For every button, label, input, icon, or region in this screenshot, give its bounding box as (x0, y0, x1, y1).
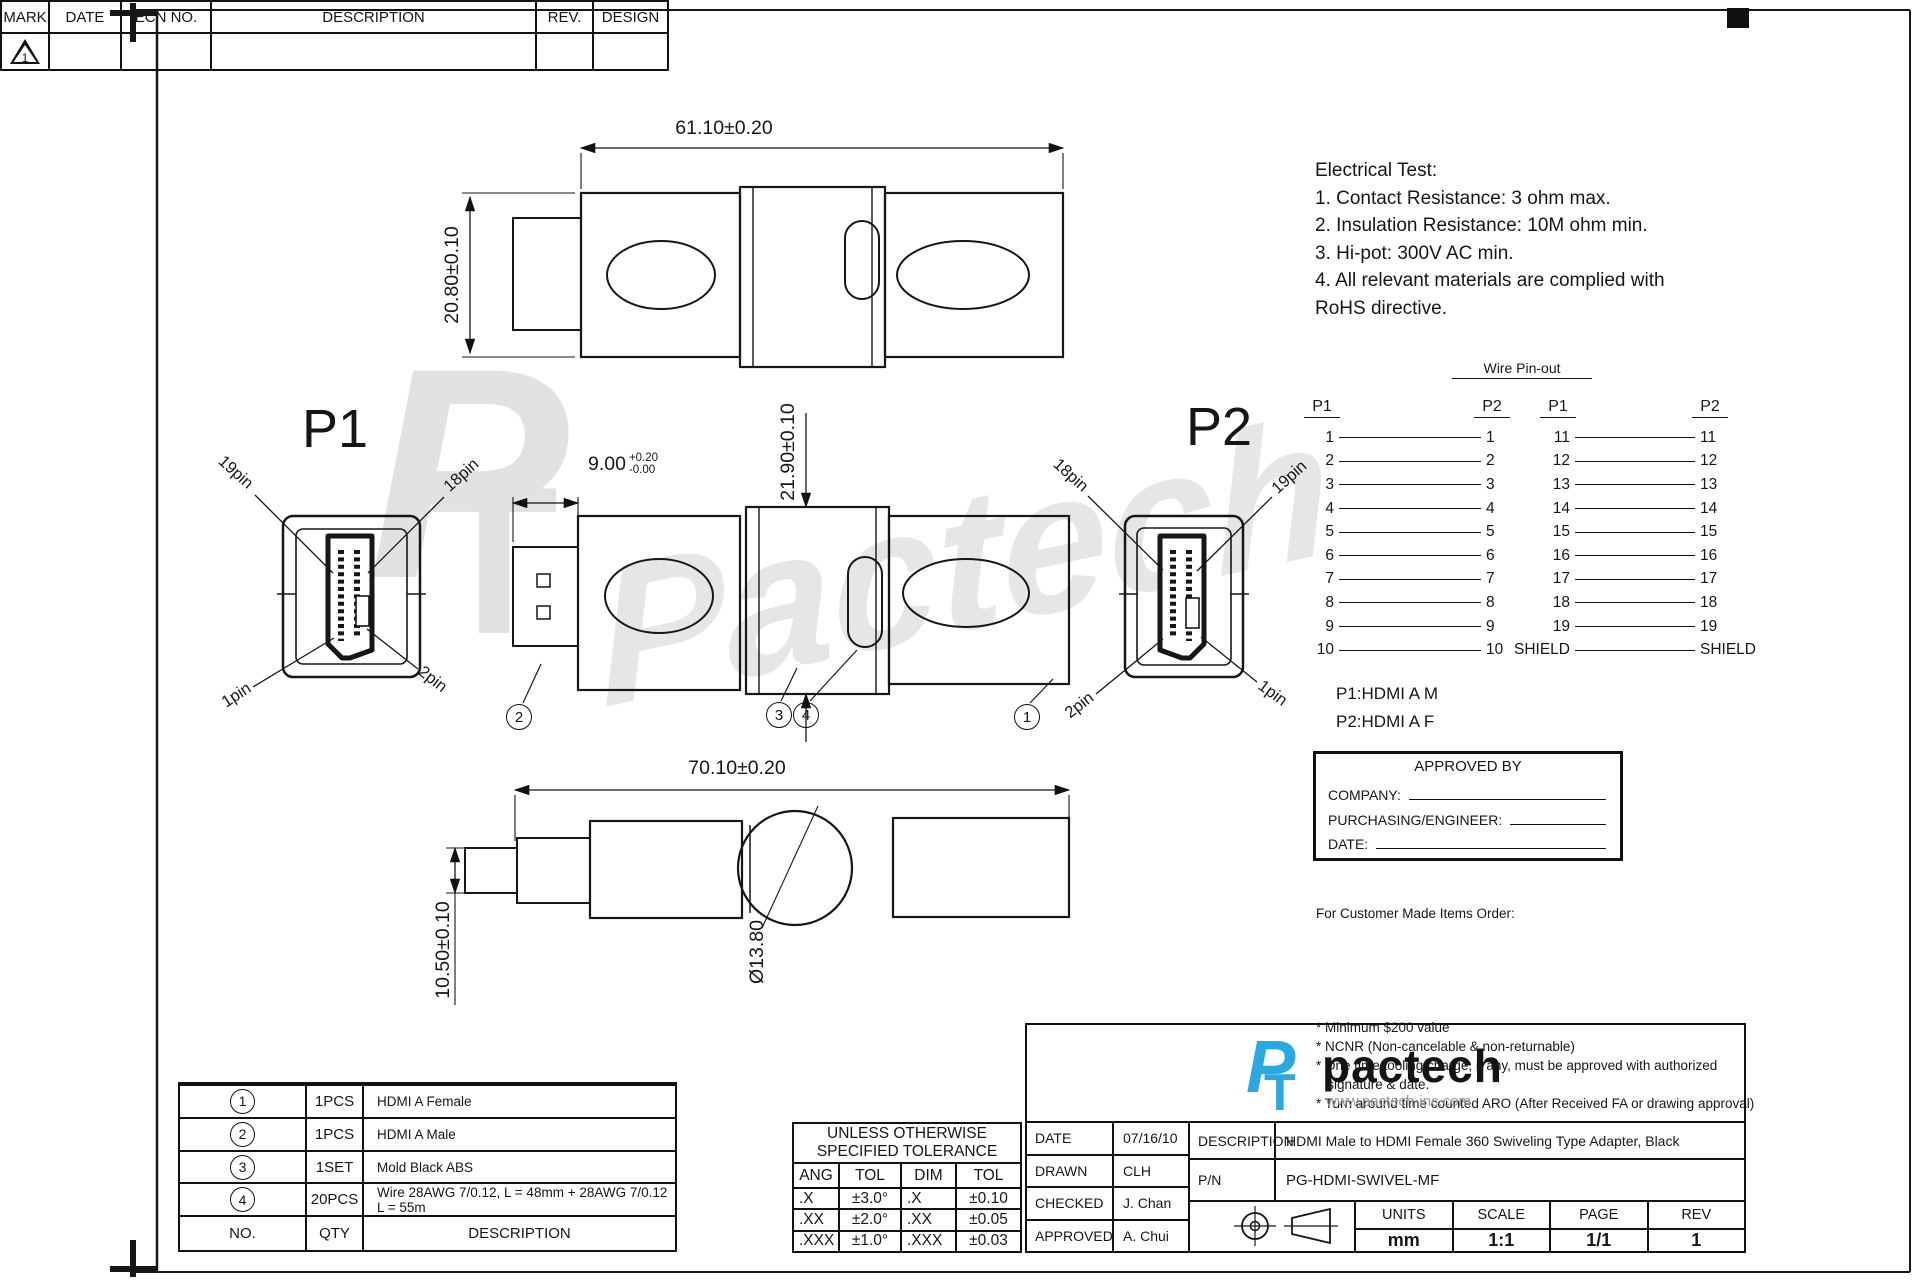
pinout-group-a: 1 1 2 2 3 3 4 4 5 5 6 6 (1290, 426, 1530, 662)
approved-by-box: APPROVED BY COMPANY: PURCHASING/ENGINEER… (1313, 751, 1623, 861)
pinout-wire-line (1575, 484, 1695, 485)
pinout-right-pin: 12 (1700, 452, 1762, 470)
pinout-wire-line (1575, 650, 1695, 651)
tolerance-header-angtol: TOL (840, 1164, 902, 1187)
tolerance-dim-cell: .XX (902, 1210, 957, 1229)
pinout-wire-line (1339, 579, 1481, 580)
pinout-right-pin: 14 (1700, 500, 1762, 518)
pinout-left-pin: 7 (1290, 570, 1334, 588)
bom-qty-cell: 1PCS (307, 1119, 364, 1150)
bom-item-number: 1 (230, 1089, 255, 1114)
revision-empty-design (594, 34, 667, 69)
p2-pin1-label: 1pin (1240, 667, 1304, 721)
dim-plug-length: 9.00 +0.20 -0.00 (588, 452, 658, 476)
drawn-value: CLH (1114, 1156, 1188, 1187)
electrical-test-line: 2. Insulation Resistance: 10M ohm min. (1315, 212, 1685, 240)
pinout-header-p2-b: P2 (1692, 398, 1728, 418)
description-value: HDMI Male to HDMI Female 360 Swiveling T… (1276, 1123, 1744, 1158)
bom-footer-no: NO. (180, 1217, 307, 1250)
bom-no-cell: 3 (180, 1152, 307, 1183)
pinout-row: 6 6 (1290, 544, 1530, 568)
revision-col-description: DESCRIPTION (212, 2, 537, 34)
revision-col-date: DATE (50, 2, 122, 34)
page-value: 1/1 (1551, 1230, 1647, 1251)
pinout-right-pin: 19 (1700, 618, 1762, 636)
pinout-row: 3 3 (1290, 473, 1530, 497)
pinout-left-pin: 19 (1508, 618, 1570, 636)
pinout-header-p1-b: P1 (1540, 398, 1576, 418)
pinout-left-pin: 17 (1508, 570, 1570, 588)
bom-table: 4 20PCS Wire 28AWG 7/0.12, L = 48mm + 28… (178, 1082, 677, 1252)
pn-field-label: P/N (1190, 1160, 1276, 1200)
tolerance-title-line2: SPECIFIED TOLERANCE (817, 1143, 997, 1161)
pinout-wire-line (1575, 626, 1695, 627)
p1-view-label: P1 (302, 398, 368, 460)
tolerance-row: .X ±3.0° .X ±0.10 (794, 1189, 1020, 1210)
pinout-row: 1 1 (1290, 426, 1530, 450)
rev-label: REV (1649, 1202, 1745, 1230)
pinout-row: 19 19 (1508, 615, 1762, 639)
pinout-row: 13 13 (1508, 473, 1762, 497)
projection-symbol-cell (1190, 1202, 1356, 1251)
bom-row: 1 1PCS HDMI A Female (180, 1084, 675, 1117)
tolerance-angtol-cell: ±1.0° (840, 1232, 902, 1251)
revision-table: MARK DATE ECN NO. DESCRIPTION REV. DESIG… (0, 0, 669, 71)
tolerance-dimtol-cell: ±0.05 (957, 1210, 1020, 1229)
pinout-right-pin: 16 (1700, 547, 1762, 565)
dim-top-length: 61.10±0.20 (662, 116, 786, 140)
pinout-right-pin: 18 (1700, 594, 1762, 612)
pinout-row: 11 11 (1508, 426, 1762, 450)
balloon-2: 2 (506, 704, 532, 730)
pinout-wire-line (1339, 650, 1481, 651)
pinout-left-pin: 14 (1508, 500, 1570, 518)
bom-rows: 4 20PCS Wire 28AWG 7/0.12, L = 48mm + 28… (180, 1084, 675, 1215)
checked-field-label: CHECKED (1027, 1188, 1114, 1219)
bom-item-number: 2 (230, 1122, 255, 1147)
pinout-row: 7 7 (1290, 568, 1530, 592)
dim-plug-main: 9.00 (588, 453, 626, 476)
bom-desc-cell: Wire 28AWG 7/0.12, L = 48mm + 28AWG 7/0.… (364, 1184, 675, 1215)
pinout-right-pin: SHIELD (1700, 641, 1762, 659)
company-blank-line (1409, 799, 1606, 800)
revision-col-rev: REV. (537, 2, 594, 34)
description-field-label: DESCRIPTION (1190, 1123, 1276, 1158)
pinout-left-pin: 2 (1290, 452, 1334, 470)
tolerance-dim-cell: .XXX (902, 1232, 957, 1251)
bom-no-cell: 1 (180, 1086, 307, 1117)
approved-value: A. Chui (1114, 1221, 1188, 1252)
dim-knob-diameter: Ø13.80 (746, 897, 768, 1007)
pinout-wire-line (1575, 437, 1695, 438)
revision-empty-date (50, 34, 122, 69)
pinout-wire-line (1575, 579, 1695, 580)
pinout-row: 2 2 (1290, 450, 1530, 474)
pinout-row: 9 9 (1290, 615, 1530, 639)
electrical-test-lines: 1. Contact Resistance: 3 ohm max.2. Insu… (1315, 185, 1685, 323)
bom-qty-cell: 20PCS (307, 1184, 364, 1215)
pinout-row: SHIELD SHIELD (1508, 638, 1762, 662)
electrical-test-line: RoHS directive. (1315, 295, 1685, 323)
pinout-left-pin: 4 (1290, 500, 1334, 518)
date-blank-line (1376, 848, 1606, 849)
checked-value: J. Chan (1114, 1188, 1188, 1219)
p1-pin1-label: 1pin (205, 670, 270, 722)
tolerance-row: .XX ±2.0° .XX ±0.05 (794, 1210, 1020, 1231)
date-label: DATE: (1328, 836, 1368, 852)
pinout-wire-line (1339, 508, 1481, 509)
pinout-right-pin: 11 (1700, 429, 1762, 447)
units-value: mm (1356, 1230, 1452, 1251)
bom-qty-cell: 1SET (307, 1152, 364, 1183)
bom-row: 2 1PCS HDMI A Male (180, 1117, 675, 1150)
logo-wordmark: pactech (1322, 1039, 1503, 1093)
bom-desc-cell: HDMI A Female (364, 1086, 675, 1117)
bom-footer-row: NO. QTY DESCRIPTION (180, 1215, 675, 1250)
revision-col-mark: MARK (2, 2, 50, 34)
dim-plug-tol-lower: -0.00 (629, 464, 658, 476)
pinout-left-pin: 9 (1290, 618, 1334, 636)
revision-mark-number: 1 (10, 51, 40, 65)
pinout-row: 4 4 (1290, 497, 1530, 521)
revision-empty-rev (537, 34, 594, 69)
bom-no-cell: 2 (180, 1119, 307, 1150)
pinout-header-p1-a: P1 (1304, 398, 1340, 418)
electrical-test-line: 3. Hi-pot: 300V AC min. (1315, 240, 1685, 268)
tolerance-dimtol-cell: ±0.03 (957, 1232, 1020, 1251)
tolerance-rows: .X ±3.0° .X ±0.10 .XX ±2.0° .XX ±0.05 .X… (794, 1189, 1020, 1251)
pinout-left-pin: 16 (1508, 547, 1570, 565)
balloon-4: 4 (793, 702, 819, 728)
p2-view-label: P2 (1186, 396, 1252, 458)
pinout-left-pin: 3 (1290, 476, 1334, 494)
pinout-row: 15 15 (1508, 520, 1762, 544)
pinout-wire-line (1339, 555, 1481, 556)
pinout-right-pin: 17 (1700, 570, 1762, 588)
purchasing-blank-line (1510, 824, 1606, 825)
pinout-wire-line (1575, 602, 1695, 603)
revision-empty-description (212, 34, 537, 69)
bom-footer-qty: QTY (307, 1217, 364, 1250)
pinout-row: 10 10 (1290, 638, 1530, 662)
drawing-sheet: P T Pactech (0, 0, 1920, 1280)
revision-mark-cell: 1 (2, 34, 50, 69)
pinout-legend-p2: P2:HDMI A F (1336, 712, 1434, 732)
p1-pin19-label: 19pin (205, 444, 266, 502)
bom-desc-cell: HDMI A Male (364, 1119, 675, 1150)
tolerance-header-dimtol: TOL (957, 1164, 1020, 1187)
electrical-test-title: Electrical Test: (1315, 157, 1685, 185)
bom-item-number: 4 (230, 1187, 255, 1212)
bom-item-number: 3 (230, 1155, 255, 1180)
pinout-wire-line (1339, 602, 1481, 603)
date-field-label: DATE (1027, 1123, 1114, 1154)
tolerance-table: UNLESS OTHERWISE SPECIFIED TOLERANCE ANG… (792, 1122, 1022, 1253)
tolerance-title: UNLESS OTHERWISE SPECIFIED TOLERANCE (794, 1124, 1020, 1164)
pinout-wire-line (1575, 555, 1695, 556)
tolerance-dimtol-cell: ±0.10 (957, 1189, 1020, 1208)
dim-plug-tol-upper: +0.20 (629, 452, 658, 464)
approved-by-title: APPROVED BY (1328, 758, 1608, 775)
pinout-left-pin: 8 (1290, 594, 1334, 612)
pinout-wire-line (1339, 532, 1481, 533)
electrical-test-line: 4. All relevant materials are complied w… (1315, 267, 1685, 295)
units-label: UNITS (1356, 1202, 1452, 1230)
pinout-left-pin: 6 (1290, 547, 1334, 565)
electrical-test-line: 1. Contact Resistance: 3 ohm max. (1315, 185, 1685, 213)
tolerance-title-line1: UNLESS OTHERWISE (827, 1125, 987, 1143)
revision-empty-ecn (122, 34, 212, 69)
pinout-row: 8 8 (1290, 591, 1530, 615)
tolerance-header-row: ANG TOL DIM TOL (794, 1164, 1020, 1189)
pinout-wire-line (1575, 508, 1695, 509)
pinout-right-pin: 15 (1700, 523, 1762, 541)
electrical-test-notes: Electrical Test: 1. Contact Resistance: … (1315, 157, 1685, 322)
scale-label: SCALE (1454, 1202, 1550, 1230)
tolerance-dim-cell: .X (902, 1189, 957, 1208)
p2-pin2-label: 2pin (1049, 678, 1112, 733)
pinout-wire-line (1339, 484, 1481, 485)
tolerance-ang-cell: .X (794, 1189, 840, 1208)
signoff-table: DATE07/16/10 DRAWNCLH CHECKEDJ. Chan APP… (1027, 1123, 1190, 1251)
tolerance-header-ang: ANG (794, 1164, 840, 1187)
pinout-left-pin: 18 (1508, 594, 1570, 612)
revision-col-design: DESIGN (594, 2, 667, 34)
tolerance-ang-cell: .XX (794, 1210, 840, 1229)
tolerance-header-dim: DIM (902, 1164, 957, 1187)
pinout-wire-line (1339, 461, 1481, 462)
bom-desc-cell: Mold Black ABS (364, 1152, 675, 1183)
dim-front-height: 20.80±0.10 (441, 200, 463, 350)
pinout-wire-line (1575, 532, 1695, 533)
pinout-title: Wire Pin-out (1452, 358, 1592, 379)
pinout-left-pin: 5 (1290, 523, 1334, 541)
balloon-3: 3 (766, 702, 792, 728)
pinout-left-pin: 10 (1290, 641, 1334, 659)
pn-value: PG-HDMI-SWIVEL-MF (1276, 1160, 1744, 1200)
rev-value: 1 (1649, 1230, 1745, 1251)
company-label: COMPANY: (1328, 787, 1401, 803)
page-label: PAGE (1551, 1202, 1647, 1230)
pinout-row: 12 12 (1508, 450, 1762, 474)
pinout-left-pin: 12 (1508, 452, 1570, 470)
pinout-wire-line (1339, 626, 1481, 627)
purchasing-label: PURCHASING/ENGINEER: (1328, 812, 1502, 828)
revision-triangle-icon: 1 (10, 39, 40, 64)
logo-area: P T pactech www.pactech-inc.com (1027, 1025, 1744, 1123)
scale-value: 1:1 (1454, 1230, 1550, 1251)
pinout-legend-p1: P1:HDMI A M (1336, 684, 1438, 704)
balloon-1: 1 (1014, 704, 1040, 730)
tolerance-angtol-cell: ±2.0° (840, 1210, 902, 1229)
tolerance-ang-cell: .XXX (794, 1232, 840, 1251)
pinout-wire-line (1339, 437, 1481, 438)
pinout-left-pin: SHIELD (1508, 641, 1570, 659)
title-block: P T pactech www.pactech-inc.com DATE07/1… (1025, 1023, 1746, 1253)
date-value: 07/16/10 (1114, 1123, 1188, 1154)
drawn-field-label: DRAWN (1027, 1156, 1114, 1187)
pinout-row: 5 5 (1290, 520, 1530, 544)
revision-col-ecn: ECN NO. (122, 2, 212, 34)
tolerance-angtol-cell: ±3.0° (840, 1189, 902, 1208)
logo-t-glyph: T (1264, 1063, 1296, 1123)
bom-row: 4 20PCS Wire 28AWG 7/0.12, L = 48mm + 28… (180, 1182, 675, 1215)
pinout-left-pin: 15 (1508, 523, 1570, 541)
bom-footer-desc: DESCRIPTION (364, 1217, 675, 1250)
logo-url: www.pactech-inc.com (1326, 1093, 1471, 1110)
bom-row: 3 1SET Mold Black ABS (180, 1150, 675, 1183)
dim-overall-length: 70.10±0.20 (675, 756, 799, 780)
order-notes-title: For Customer Made Items Order: (1316, 904, 1766, 923)
pinout-row: 16 16 (1508, 544, 1762, 568)
pinout-row: 17 17 (1508, 568, 1762, 592)
pinout-left-pin: 13 (1508, 476, 1570, 494)
bom-no-cell: 4 (180, 1184, 307, 1215)
tolerance-row: .XXX ±1.0° .XXX ±0.03 (794, 1232, 1020, 1251)
dim-tail-height: 10.50±0.10 (432, 875, 454, 1025)
pinout-row: 18 18 (1508, 591, 1762, 615)
pinout-row: 14 14 (1508, 497, 1762, 521)
pinout-left-pin: 1 (1290, 429, 1334, 447)
dim-joint-height: 21.90±0.10 (777, 377, 799, 527)
approved-field-label: APPROVED (1027, 1221, 1114, 1252)
pinout-right-pin: 13 (1700, 476, 1762, 494)
pinout-group-b: 11 11 12 12 13 13 14 14 15 15 16 (1508, 426, 1762, 662)
pinout-header-p2-a: P2 (1474, 398, 1510, 418)
bom-qty-cell: 1PCS (307, 1086, 364, 1117)
pinout-wire-line (1575, 461, 1695, 462)
pinout-left-pin: 11 (1508, 429, 1570, 447)
